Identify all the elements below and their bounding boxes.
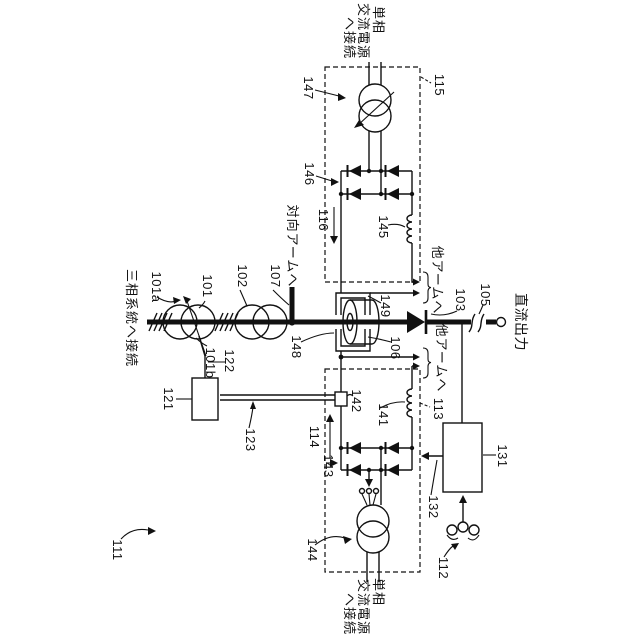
leader-lines [121,77,496,557]
ref-146: 146 [302,162,317,185]
ref-115: 115 [432,74,447,96]
ref-145: 145 [376,215,391,238]
ref-112: 112 [436,557,451,579]
label-opposite-arm: 対向アームへ [285,205,300,288]
ref-141: 141 [376,403,391,426]
ref-116: 116 [316,209,331,231]
ref-149: 149 [378,294,393,317]
diode-bridge-143 [339,442,414,476]
ref-114: 114 [307,426,322,448]
label-dc-output: 直流出力 [513,293,529,351]
patent-circuit-diagram: 三相系統へ接続 対向アームへ 直流出力 他アームへ 他アームへ 単相 交流電源 … [0,0,640,640]
ref-101: 101 [200,274,215,297]
excitation-unit-113 [325,348,431,582]
label-other-arm-bottom: 他アームへ [434,324,449,393]
transformer-144 [357,505,389,582]
ref-105: 105 [478,283,493,306]
valve-103 [407,310,426,334]
ref-144: 144 [305,538,320,561]
line-break-105 [469,314,484,332]
ref-121: 121 [161,387,176,410]
winding-106 [336,329,370,351]
ref-142: 142 [349,389,364,412]
interface-142 [335,392,347,406]
svg-text:交流電源: 交流電源 [356,3,371,59]
label-single-phase-top: 単相 交流電源 へ接続 [342,3,386,59]
signal-input-112 [447,522,479,540]
ref-131: 131 [495,444,510,467]
diode-bridge-146 [339,131,414,200]
current-arrow-114 [326,414,334,458]
label-three-phase-connect: 三相系統へ接続 [124,269,139,367]
svg-text:へ接続: へ接続 [342,593,357,635]
ref-101a: 101a [149,272,164,303]
ref-122: 122 [222,349,237,372]
inductor-145 [407,194,413,282]
link-123 [220,395,335,400]
ref-101b: 101b [203,348,218,379]
label-single-phase-bottom: 単相 交流電源 へ接続 [342,578,386,635]
patent-figure-page: 三相系統へ接続 対向アームへ 直流出力 他アームへ 他アームへ 単相 交流電源 … [0,0,640,640]
ref-103: 103 [453,288,468,311]
ref-143: 143 [321,454,336,477]
svg-text:単相: 単相 [371,578,386,606]
tap-selector [360,448,382,505]
ref-132: 132 [426,495,441,518]
ref-148: 148 [289,335,304,358]
svg-text:交流電源: 交流電源 [356,579,371,635]
ref-102: 102 [235,264,250,287]
ref-147: 147 [301,76,316,99]
svg-text:へ接続: へ接続 [342,17,357,59]
label-other-arm-top: 他アームへ [430,246,445,315]
inductor-141 [407,366,412,448]
winding-149 [336,293,370,315]
svg-text:単相: 単相 [371,6,386,34]
ref-111: 111 [110,539,125,560]
ref-106: 106 [388,336,403,359]
ref-107: 107 [268,264,283,287]
transformer-147 [354,62,394,132]
dc-output-terminal [497,318,506,327]
ref-123: 123 [243,428,258,451]
ref-113: 113 [431,398,446,420]
